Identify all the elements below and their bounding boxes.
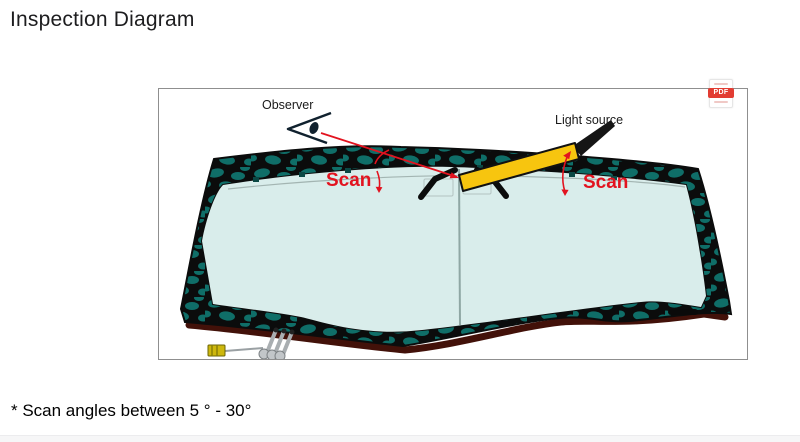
eye-icon <box>288 113 331 143</box>
page-title: Inspection Diagram <box>10 7 195 33</box>
trim-bar <box>668 309 698 315</box>
pdf-icon-decor-line <box>714 83 728 85</box>
windshield-diagram-svg: Observer Light source Scan Scan <box>159 89 747 359</box>
pdf-file-icon[interactable]: PDF <box>709 79 733 108</box>
pdf-icon-badge: PDF <box>708 88 734 98</box>
scan-angle-footnote: * Scan angles between 5 ° - 30° <box>11 401 251 421</box>
observer-label: Observer <box>262 98 313 112</box>
scan-label-right: Scan <box>583 172 628 193</box>
light-source-label: Light source <box>555 113 623 127</box>
pdf-icon-decor-line <box>714 101 728 103</box>
center-divider <box>459 169 460 325</box>
bottom-edge-bar <box>0 435 800 442</box>
scan-label-left: Scan <box>326 170 371 191</box>
inspection-figure: Observer Light source Scan Scan <box>158 88 748 360</box>
